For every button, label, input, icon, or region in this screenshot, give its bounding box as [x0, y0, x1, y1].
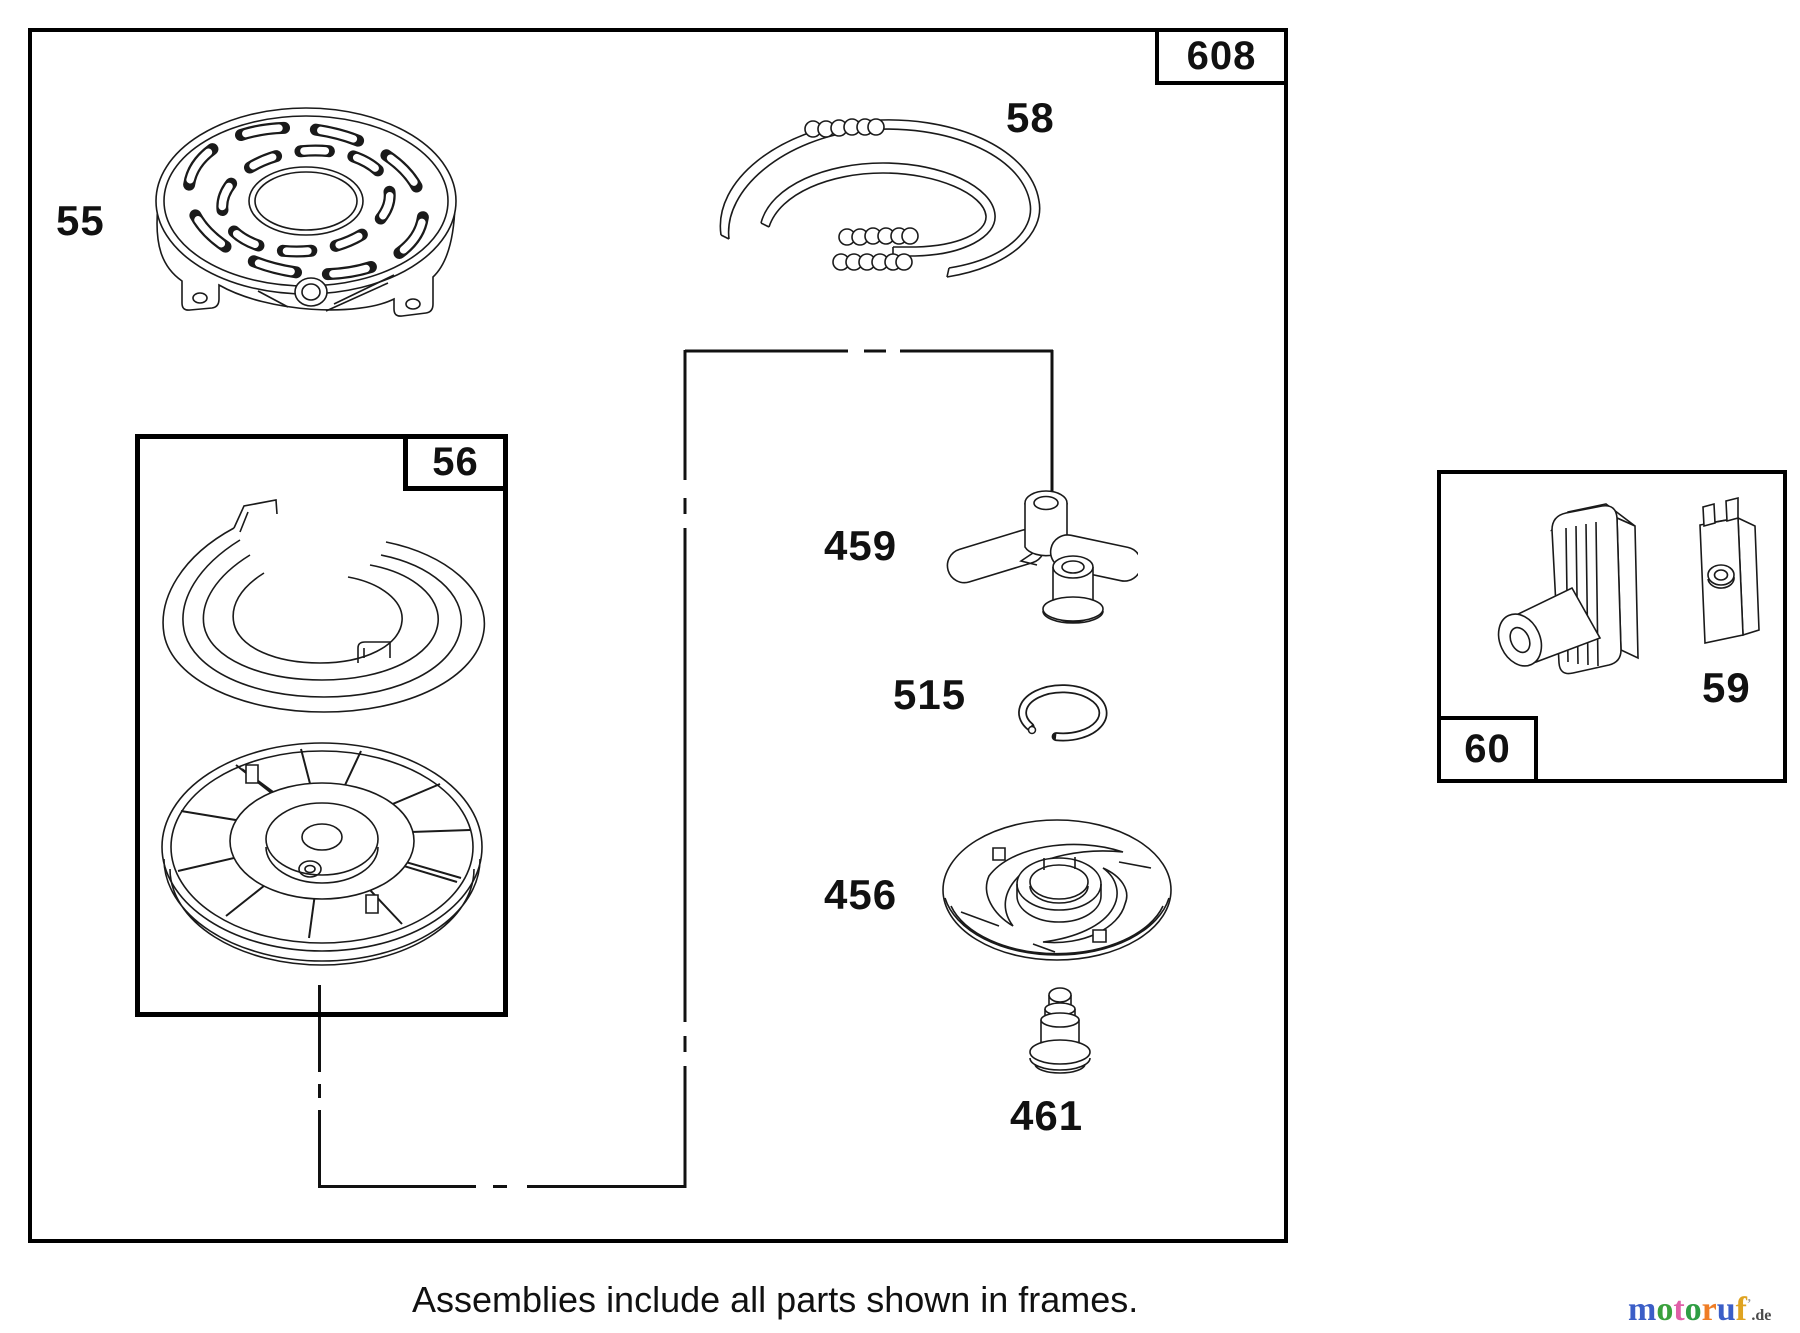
housing-grille — [156, 108, 456, 294]
page-canvas: 608 — [0, 0, 1800, 1333]
spiral-spring — [163, 500, 484, 712]
logo-letter: u — [1717, 1291, 1736, 1328]
starter-handle-drawing — [1488, 492, 1673, 707]
recoil-spring-drawing — [148, 498, 498, 723]
part-number-459: 459 — [824, 525, 897, 567]
logo-letter: r — [1702, 1291, 1717, 1328]
outer-hook — [234, 500, 277, 532]
pulley-bore — [302, 824, 342, 850]
part-number-59: 59 — [1702, 667, 1751, 709]
logo-letter: t — [1673, 1291, 1684, 1328]
guide-body — [1700, 498, 1759, 643]
center-opening — [249, 167, 363, 235]
logo-letter: f — [1736, 1291, 1747, 1328]
pulley-wheel — [162, 743, 482, 965]
c-ring — [1023, 689, 1103, 737]
left-pawl — [943, 491, 1068, 587]
sub-frame-60-tag: 60 — [1437, 716, 1538, 783]
starter-spring-drawing — [695, 105, 1050, 300]
logo-letter: o — [1685, 1291, 1702, 1328]
logo-letter: m — [1628, 1291, 1656, 1328]
frame-number-56: 56 — [432, 440, 479, 485]
sub-frame-56-tag: 56 — [403, 434, 508, 491]
assembly-frame-608-tag: 608 — [1155, 28, 1288, 85]
pawl-set-drawing — [938, 475, 1138, 625]
stepped-screw — [1030, 988, 1090, 1073]
blower-housing-drawing — [148, 105, 468, 360]
ratchet-body — [943, 820, 1171, 960]
frame-number-60: 60 — [1464, 727, 1511, 772]
frame-number-608: 608 — [1187, 34, 1257, 79]
part-number-461: 461 — [1010, 1095, 1083, 1137]
right-pawl — [1043, 532, 1138, 623]
site-logo[interactable]: motoruf’.de — [1628, 1290, 1771, 1331]
ratchet-pulley-drawing — [935, 812, 1180, 977]
retaining-ring-drawing — [1008, 680, 1118, 750]
part-number-515: 515 — [893, 674, 966, 716]
recoil-pulley-drawing — [150, 735, 495, 980]
part-number-58: 58 — [1006, 97, 1055, 139]
part-number-55: 55 — [56, 200, 105, 242]
part-number-456: 456 — [824, 874, 897, 916]
caption: Assemblies include all parts shown in fr… — [412, 1282, 1138, 1318]
logo-letter: o — [1656, 1291, 1673, 1328]
rope-guide-drawing — [1680, 495, 1770, 660]
logo-suffix: .de — [1751, 1307, 1771, 1324]
screw-drawing — [1018, 982, 1103, 1090]
